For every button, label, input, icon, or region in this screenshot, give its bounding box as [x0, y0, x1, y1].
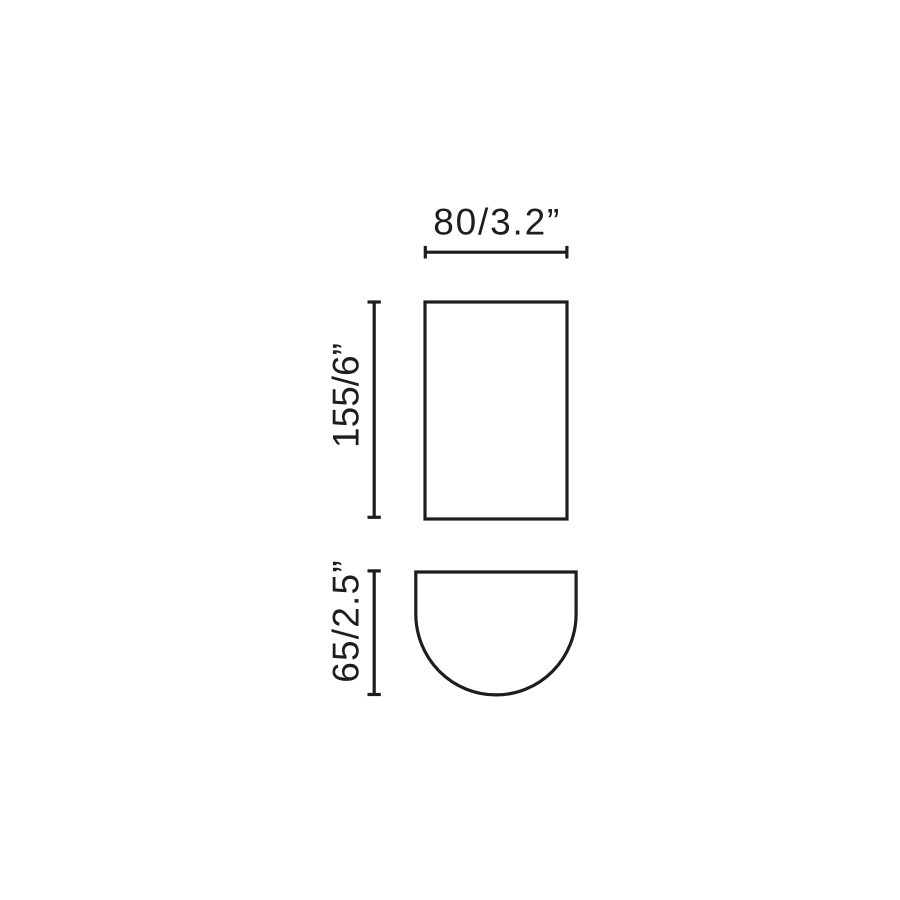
svg-text:65/2.5”: 65/2.5”: [326, 559, 367, 683]
svg-text:80/3.2”: 80/3.2”: [433, 202, 561, 243]
svg-text:155/6”: 155/6”: [326, 343, 367, 448]
